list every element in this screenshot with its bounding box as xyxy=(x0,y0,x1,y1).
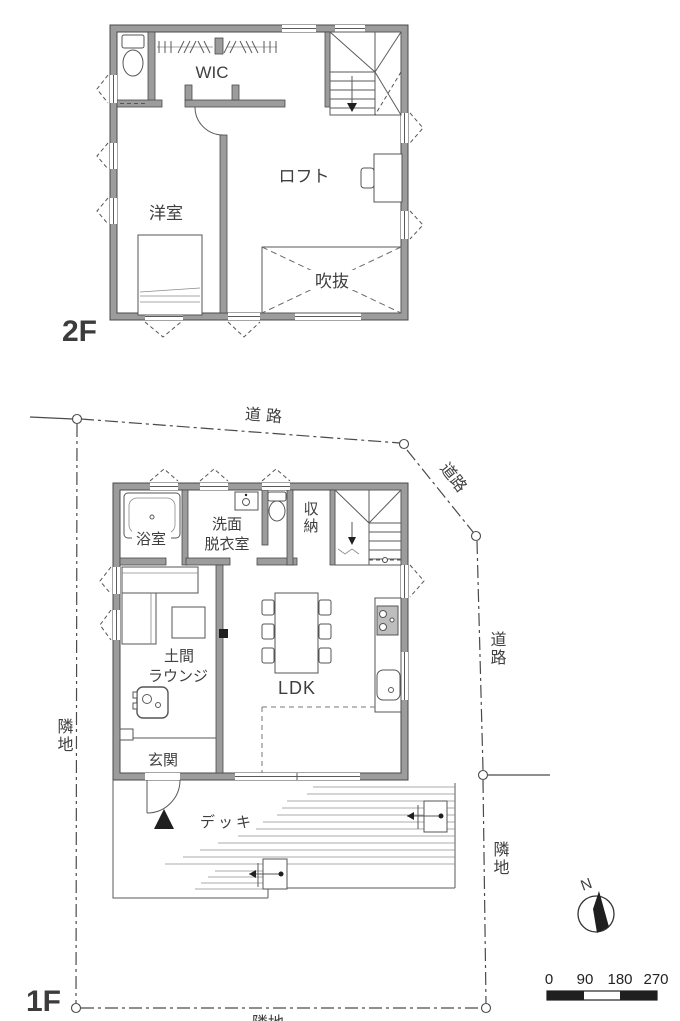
cooktop-burner-icon xyxy=(380,611,387,618)
window-swing-icon xyxy=(228,322,260,337)
2f-stairs-icon xyxy=(330,32,401,115)
neighbor-right-label: 隣地 xyxy=(491,841,510,877)
floor-plan-image: WIC ロフト 洋室 吹抜 2F 道路 道路 道路 隣地 隣地 隣地 xyxy=(0,0,680,1021)
cooktop-burner-icon xyxy=(390,618,394,622)
deck-step-right-icon xyxy=(407,801,447,832)
window-swing-icon xyxy=(100,567,111,594)
storage-label: 収納 xyxy=(302,501,319,535)
chair-icon xyxy=(319,648,331,663)
ldk-label: LDK xyxy=(278,678,316,698)
window-swing-icon xyxy=(410,113,423,143)
floor2-label: 2F xyxy=(62,315,97,348)
window-swing-icon xyxy=(97,198,108,224)
road-corner-label: 道路 xyxy=(436,459,470,495)
stair-down-arrow-icon xyxy=(348,537,356,545)
road-right-label: 道路 xyxy=(488,631,507,667)
shoe-box-icon xyxy=(120,729,133,740)
chair-icon xyxy=(319,600,331,615)
entrance-door-icon xyxy=(147,780,180,813)
scale-tick-0: 0 xyxy=(545,971,553,988)
floor1-label: 1F xyxy=(26,985,61,1018)
deck-area xyxy=(113,780,455,898)
scale-bar: 0 90 180 270 xyxy=(545,971,669,1000)
window-swing-icon xyxy=(200,469,228,481)
kitchen-sink-icon xyxy=(377,670,400,700)
window-swing-icon xyxy=(97,75,108,103)
stove-flue-icon xyxy=(219,629,228,638)
deck-step-bottom-icon xyxy=(249,859,287,889)
wood-stove-icon xyxy=(133,687,168,718)
washroom-label-line2: 脱衣室 xyxy=(204,536,249,553)
washbasin-icon xyxy=(235,492,258,510)
boundary-marker-icon xyxy=(479,771,488,780)
window-swing-icon xyxy=(145,322,181,337)
1f-stairs-icon xyxy=(335,490,401,565)
scale-tick-270: 270 xyxy=(643,971,668,988)
deck-label: デッキ xyxy=(200,813,254,831)
floor-plan-2f: WIC ロフト 洋室 吹抜 2F xyxy=(62,25,423,348)
chair-icon xyxy=(262,600,274,615)
deck-board-lines xyxy=(165,787,455,889)
boundary-marker-icon xyxy=(73,415,82,424)
doma-lounge-label-line1: 土間 xyxy=(164,648,194,665)
void-label: 吹抜 xyxy=(315,272,349,291)
cooktop-burner-icon xyxy=(380,624,387,631)
window-swing-icon xyxy=(150,469,178,481)
north-label: N xyxy=(578,875,594,895)
window-swing-icon xyxy=(100,610,111,640)
chair-icon xyxy=(262,624,274,639)
window-swing-icon xyxy=(97,143,108,169)
bath-label: 浴室 xyxy=(136,531,166,548)
boundary-marker-icon xyxy=(472,532,481,541)
toilet-icon xyxy=(268,492,286,521)
scale-bar-segment xyxy=(620,991,657,1000)
floor-plan-1f: 浴室 洗面 脱衣室 収納 土間 ラウンジ LDK 玄関 デッキ 1F xyxy=(26,469,455,1018)
scale-tick-180: 180 xyxy=(607,971,632,988)
chair-icon xyxy=(262,648,274,663)
dining-table-icon xyxy=(262,593,331,673)
window-swing-icon xyxy=(262,469,290,481)
toilet-icon xyxy=(122,35,144,76)
bedroom-label: 洋室 xyxy=(149,204,183,223)
north-arrow-icon: N xyxy=(578,875,614,933)
zone-dashed-line xyxy=(262,707,375,773)
scale-bar-segment xyxy=(547,991,584,1000)
chair-icon xyxy=(319,624,331,639)
boundary-marker-icon xyxy=(400,440,409,449)
boundary-marker-icon xyxy=(72,1004,81,1013)
plan-svg: WIC ロフト 洋室 吹抜 2F 道路 道路 道路 隣地 隣地 隣地 xyxy=(0,0,680,1021)
doma-lounge-label-line2: ラウンジ xyxy=(148,668,208,685)
neighbor-bottom-label: 隣地 xyxy=(252,1014,284,1021)
kitchen-counter-icon xyxy=(375,598,401,712)
neighbor-left-label: 隣地 xyxy=(55,718,74,754)
bed-icon xyxy=(138,235,202,315)
door-swing-icon xyxy=(195,107,223,135)
washroom-label-line1: 洗面 xyxy=(212,516,242,533)
scale-tick-90: 90 xyxy=(577,971,594,988)
loft-label: ロフト xyxy=(279,167,330,186)
road-top-label: 道路 xyxy=(244,405,287,426)
low-table-icon xyxy=(172,607,205,638)
boundary-marker-icon xyxy=(482,1004,491,1013)
window-swing-icon xyxy=(410,211,423,239)
entrance-label: 玄関 xyxy=(148,752,178,769)
window-swing-icon xyxy=(410,565,424,597)
desk-icon xyxy=(361,154,402,202)
wic-label: WIC xyxy=(195,63,228,82)
